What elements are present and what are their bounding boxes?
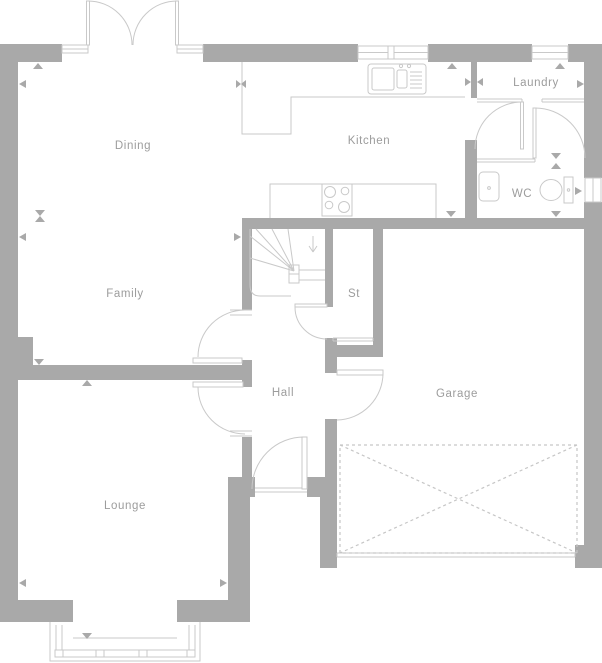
door-frame [255, 488, 307, 492]
wall-bottom-1 [0, 600, 73, 622]
room-label-store: St [348, 288, 360, 300]
french-doors [87, 1, 179, 45]
kitchen-counter-lower [270, 184, 436, 218]
bay-mullion [139, 650, 147, 657]
store-doorway [333, 338, 373, 341]
door-arc [535, 108, 585, 158]
door-arc [252, 437, 304, 489]
door-arc [337, 373, 383, 420]
stairs-stringer [250, 229, 291, 296]
door-arc [88, 1, 132, 45]
marker-right [575, 187, 582, 195]
marker-left [19, 579, 26, 587]
wall-hall-garage-lower [320, 497, 337, 568]
stairs-treads [250, 229, 325, 280]
marker-down [446, 211, 456, 217]
marker-hourglass [35, 210, 45, 216]
wc-door [533, 108, 585, 158]
garage-vehicle-door [337, 553, 575, 557]
door-arc [198, 310, 245, 357]
wall-top-2 [203, 44, 358, 62]
bay-mullion [55, 650, 63, 657]
marker-down [551, 153, 561, 159]
wall-store-right [373, 227, 383, 347]
marker-bowtie [236, 80, 241, 88]
floor-plan: Dining Kitchen Laundry WC Family St Hall… [0, 0, 602, 663]
wall-left [0, 44, 18, 622]
door-arc [295, 307, 327, 339]
marker-down [34, 359, 44, 365]
garage-door [337, 370, 383, 420]
laundry-window [532, 46, 568, 59]
wall-hall-garage-mid [325, 419, 337, 497]
room-label-lounge: Lounge [104, 500, 146, 512]
wc-window [585, 178, 601, 202]
wall-garage-door-pier [575, 545, 584, 568]
room-label-garage: Garage [436, 388, 478, 400]
hob [322, 184, 352, 216]
laundry-door [475, 102, 524, 149]
stairs-newel [289, 274, 299, 283]
wall-right-upper [584, 44, 602, 178]
marker-right [577, 80, 584, 88]
garage-parking-area [340, 445, 577, 553]
room-label-hall: Hall [272, 387, 294, 399]
marker-right [234, 233, 241, 241]
kitchen-window [358, 46, 428, 59]
marker-up [551, 163, 561, 169]
wall-wc-left [465, 140, 477, 218]
room-label-family: Family [106, 288, 143, 300]
door-arc [475, 102, 522, 149]
room-label-kitchen: Kitchen [348, 135, 391, 147]
kitchen-counter [242, 62, 465, 134]
marker-up [82, 380, 92, 386]
marker-left [19, 80, 26, 88]
bay-mullion [187, 650, 195, 657]
room-label-wc: WC [512, 188, 532, 200]
door-arc [133, 1, 177, 45]
door-arc [198, 387, 245, 434]
wall-frontdoor-left-jamb [228, 477, 255, 497]
marker-up [33, 63, 43, 69]
marker-up [447, 63, 457, 69]
marker-up [555, 63, 565, 69]
wall-right-lower [584, 202, 602, 568]
bay-window [50, 622, 200, 661]
room-label-dining: Dining [115, 140, 151, 152]
lounge-door [193, 382, 252, 436]
wall-top-3 [428, 44, 532, 62]
laundry-partition [477, 99, 584, 102]
toilet [540, 177, 573, 203]
partitions [477, 99, 584, 162]
floor-plan-canvas: Dining Kitchen Laundry WC Family St Hall… [0, 0, 602, 663]
front-door [252, 437, 307, 492]
marker-left [19, 233, 26, 241]
marker-left [477, 78, 483, 86]
marker-right [465, 78, 471, 86]
wall-hall-left-lower [242, 437, 252, 477]
wall-lounge-right [228, 477, 250, 622]
wc-partition [477, 159, 535, 162]
kitchen-sink [368, 64, 426, 94]
walls [0, 44, 602, 622]
room-label-laundry: Laundry [513, 77, 559, 89]
bay-mullion [96, 650, 104, 657]
wall-laundry-left [471, 62, 477, 98]
wall-mid-band [242, 218, 584, 229]
marker-down [551, 211, 561, 217]
door-frame [230, 310, 252, 315]
marker-hourglass [35, 216, 45, 222]
wall-store-left [325, 227, 333, 307]
wall-family-pier [18, 337, 33, 365]
marker-right [220, 579, 227, 587]
stairs-direction-arrow [309, 236, 317, 252]
store-door [295, 304, 373, 341]
stairs [250, 229, 325, 296]
family-door [193, 310, 252, 363]
french-door-jambs [62, 45, 203, 53]
basin [479, 172, 499, 201]
wall-family-lounge [18, 365, 252, 380]
